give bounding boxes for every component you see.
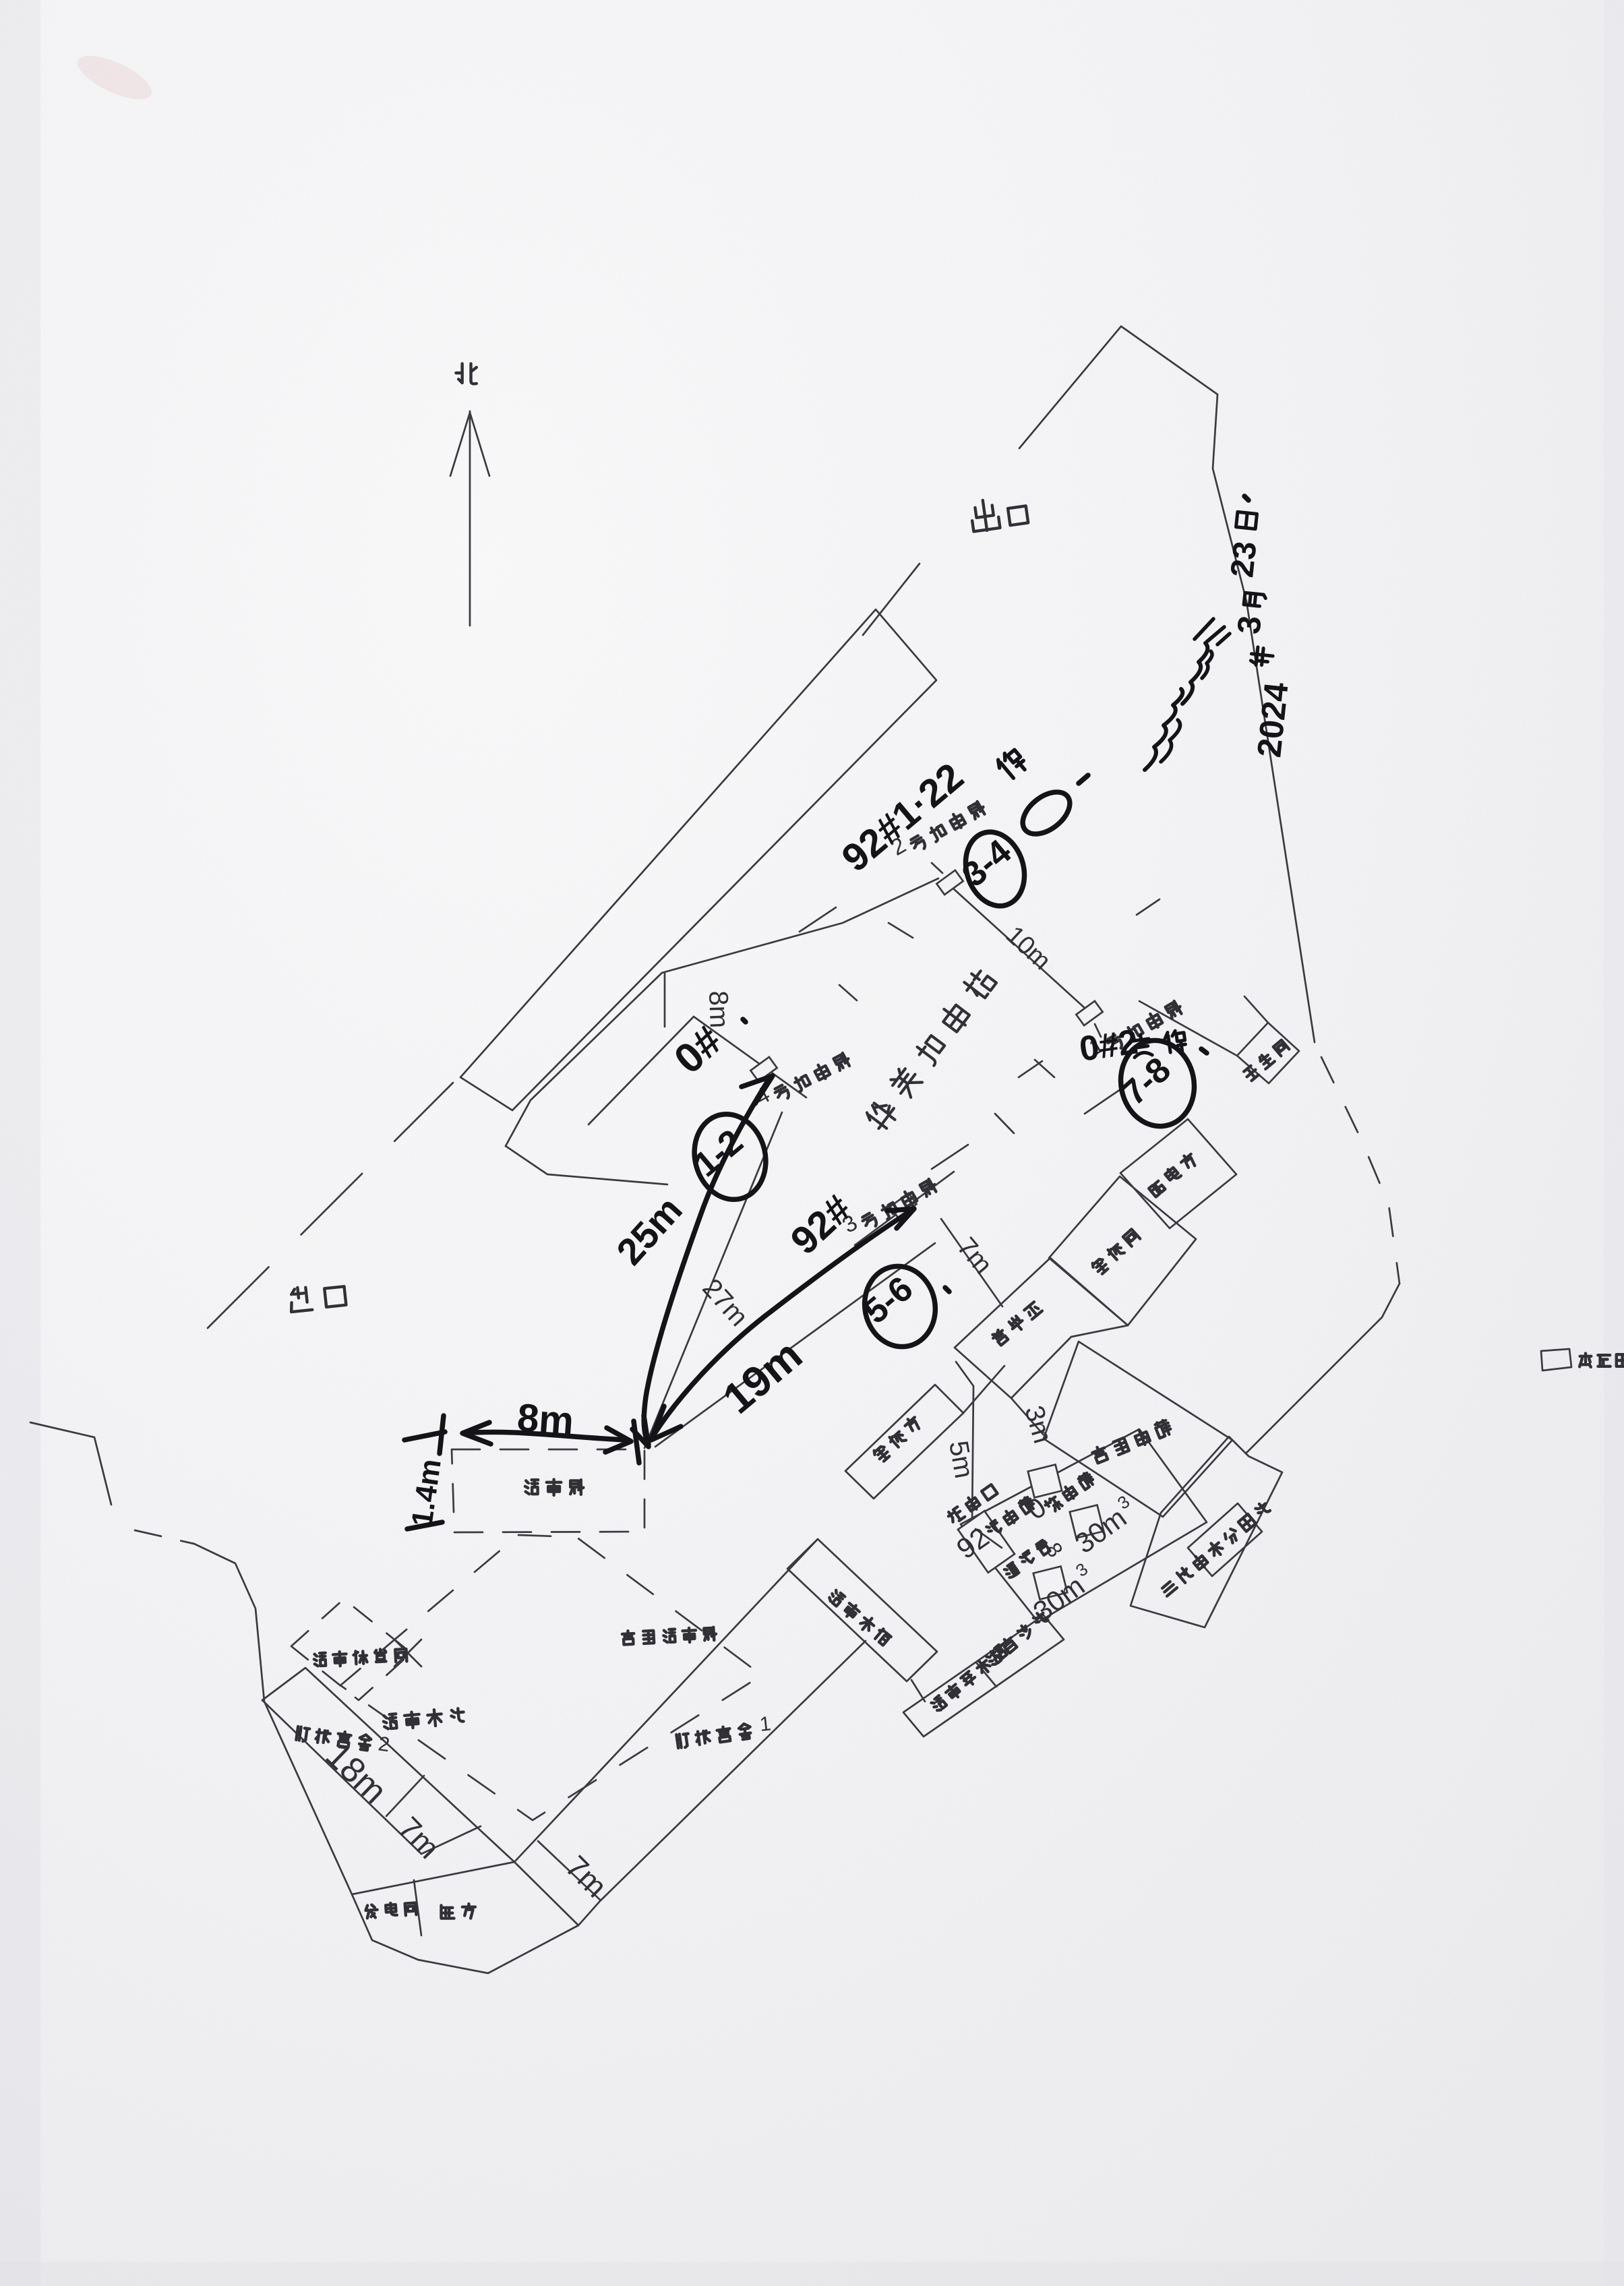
svg-text:3: 3 xyxy=(1231,614,1269,636)
svg-text:23: 23 xyxy=(1224,540,1263,580)
svg-text:8m: 8m xyxy=(516,1395,575,1443)
svg-text:1: 1 xyxy=(758,1712,772,1736)
svg-text:8m: 8m xyxy=(703,990,734,1029)
svg-text:2024: 2024 xyxy=(1250,680,1295,759)
svg-text:0#2: 0#2 xyxy=(1077,1022,1141,1069)
